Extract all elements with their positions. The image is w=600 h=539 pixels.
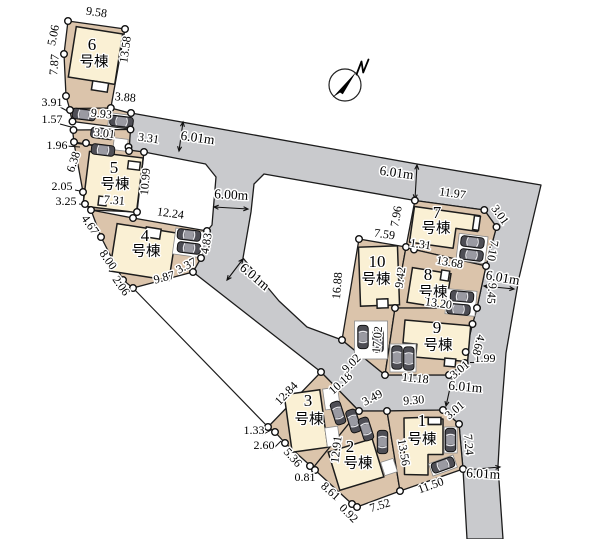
- svg-text:10: 10: [369, 252, 386, 271]
- svg-text:3.01: 3.01: [93, 125, 116, 141]
- svg-text:号棟: 号棟: [101, 176, 130, 193]
- svg-text:号棟: 号棟: [424, 337, 453, 354]
- svg-text:17.02: 17.02: [369, 326, 385, 354]
- svg-text:0.81: 0.81: [295, 470, 316, 484]
- svg-text:6.01m: 6.01m: [448, 378, 484, 396]
- svg-text:3.88: 3.88: [114, 89, 136, 105]
- svg-text:4: 4: [141, 226, 150, 245]
- svg-text:3.25: 3.25: [56, 194, 77, 208]
- svg-text:1.57: 1.57: [42, 112, 63, 126]
- svg-text:7.59: 7.59: [373, 226, 396, 243]
- svg-text:9.42: 9.42: [392, 266, 409, 289]
- svg-text:1.33: 1.33: [244, 423, 265, 437]
- svg-text:8: 8: [424, 265, 433, 284]
- svg-text:1: 1: [418, 411, 427, 430]
- svg-text:9.45: 9.45: [484, 282, 500, 304]
- svg-text:6.00m: 6.00m: [214, 186, 249, 203]
- svg-text:2.60: 2.60: [254, 438, 275, 452]
- svg-text:6: 6: [88, 35, 97, 54]
- svg-text:号棟: 号棟: [295, 411, 324, 428]
- svg-text:9.58: 9.58: [85, 4, 108, 21]
- svg-text:7.31: 7.31: [103, 192, 125, 208]
- svg-text:9: 9: [433, 318, 442, 337]
- svg-text:3.31: 3.31: [137, 130, 160, 147]
- svg-text:号棟: 号棟: [362, 271, 391, 288]
- svg-text:3.91: 3.91: [42, 95, 63, 109]
- svg-text:16.88: 16.88: [329, 272, 345, 300]
- svg-text:11.18: 11.18: [401, 370, 429, 387]
- svg-text:2: 2: [346, 437, 355, 456]
- svg-text:10.99: 10.99: [137, 168, 153, 196]
- svg-text:9.93: 9.93: [90, 105, 112, 121]
- svg-text:号棟: 号棟: [422, 220, 451, 237]
- svg-text:7.87: 7.87: [46, 54, 62, 76]
- svg-text:2.05: 2.05: [52, 179, 73, 193]
- svg-text:7.24: 7.24: [461, 434, 477, 456]
- svg-text:5: 5: [110, 158, 119, 177]
- svg-text:号棟: 号棟: [80, 54, 109, 71]
- svg-text:号棟: 号棟: [132, 243, 161, 260]
- svg-text:3: 3: [304, 391, 313, 410]
- svg-text:7: 7: [433, 203, 442, 222]
- svg-text:1.96: 1.96: [47, 138, 68, 152]
- svg-text:1.31: 1.31: [409, 236, 432, 253]
- svg-text:号棟: 号棟: [344, 455, 373, 472]
- svg-text:号棟: 号棟: [408, 431, 437, 448]
- svg-text:9.30: 9.30: [403, 392, 425, 407]
- svg-text:6.01m: 6.01m: [466, 465, 501, 482]
